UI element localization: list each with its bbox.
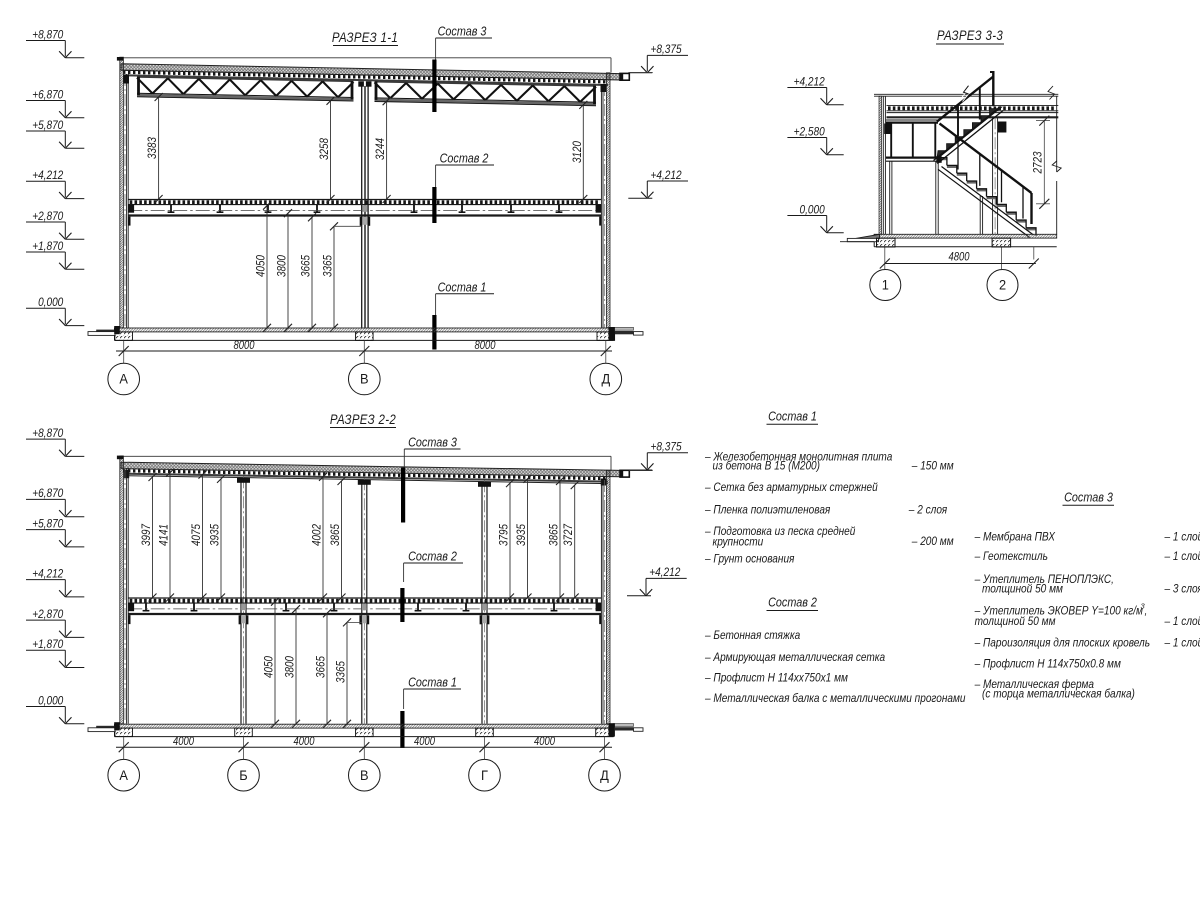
- svg-text:– 2 слоя: – 2 слоя: [908, 504, 947, 517]
- svg-text:4000: 4000: [414, 735, 435, 748]
- svg-text:3244: 3244: [374, 138, 387, 160]
- svg-text:2: 2: [999, 277, 1006, 292]
- svg-text:8000: 8000: [234, 339, 255, 352]
- svg-text:4050: 4050: [263, 655, 276, 678]
- svg-text:+1,870: +1,870: [32, 638, 64, 651]
- svg-text:+4,212: +4,212: [649, 566, 681, 579]
- svg-text:+8,870: +8,870: [32, 427, 64, 440]
- svg-text:– 3 слоя: – 3 слоя: [1164, 583, 1200, 596]
- svg-text:+8,375: +8,375: [651, 43, 683, 56]
- svg-text:В: В: [360, 767, 369, 782]
- svg-text:+5,870: +5,870: [32, 518, 64, 531]
- svg-text:1: 1: [882, 277, 889, 292]
- svg-text:толщиной 50 мм: толщиной 50 мм: [982, 583, 1063, 596]
- svg-text:– Профлист Н 114хх750х1 мм: – Профлист Н 114хх750х1 мм: [704, 671, 848, 684]
- svg-text:– Пленка полиэтиленовая: – Пленка полиэтиленовая: [704, 504, 830, 517]
- svg-text:Состав 2: Состав 2: [408, 548, 457, 563]
- svg-text:3365: 3365: [322, 254, 335, 277]
- svg-text:4002: 4002: [311, 524, 324, 546]
- svg-text:3727: 3727: [562, 523, 575, 546]
- svg-text:– Армирующая металлическая сет: – Армирующая металлическая сетка: [704, 651, 885, 664]
- svg-text:– 1 слой: – 1 слой: [1164, 615, 1200, 628]
- svg-text:8000: 8000: [475, 339, 496, 352]
- svg-text:Г: Г: [481, 767, 488, 782]
- svg-text:+2,580: +2,580: [794, 125, 826, 138]
- svg-text:3800: 3800: [284, 655, 297, 678]
- svg-text:Д: Д: [601, 371, 610, 386]
- svg-text:3665: 3665: [315, 655, 328, 678]
- svg-text:– Сетка без арматурных стержне: – Сетка без арматурных стержней: [704, 481, 878, 494]
- svg-text:Состав 2: Состав 2: [440, 150, 489, 165]
- svg-text:В: В: [360, 371, 369, 386]
- svg-text:4000: 4000: [173, 735, 194, 748]
- svg-text:РАЗРЕЗ 1-1: РАЗРЕЗ 1-1: [332, 29, 398, 45]
- svg-text:РАЗРЕЗ 2-2: РАЗРЕЗ 2-2: [330, 411, 396, 427]
- svg-text:Состав 3: Состав 3: [408, 434, 457, 449]
- svg-text:– 1 слой: – 1 слой: [1164, 531, 1200, 544]
- svg-text:+6,870: +6,870: [32, 88, 64, 101]
- svg-text:+2,870: +2,870: [32, 608, 64, 621]
- svg-text:– 200 мм: – 200 мм: [911, 535, 954, 548]
- svg-text:– 150 мм: – 150 мм: [911, 460, 954, 473]
- svg-text:+2,870: +2,870: [32, 210, 64, 223]
- svg-text:Состав 3: Состав 3: [1064, 489, 1113, 504]
- svg-text:4050: 4050: [255, 254, 268, 277]
- svg-text:– Геотекстиль: – Геотекстиль: [974, 550, 1048, 563]
- svg-text:+6,870: +6,870: [32, 487, 64, 500]
- svg-text:Состав 1: Состав 1: [768, 408, 817, 423]
- svg-text:Б: Б: [239, 767, 247, 782]
- svg-text:А: А: [119, 767, 128, 782]
- svg-text:Состав 1: Состав 1: [438, 279, 487, 294]
- svg-text:,: ,: [1145, 605, 1148, 618]
- svg-text:– Грунт основания: – Грунт основания: [704, 553, 794, 566]
- svg-text:3258: 3258: [318, 137, 331, 160]
- svg-text:3935: 3935: [515, 523, 528, 546]
- svg-text:3365: 3365: [335, 660, 348, 683]
- svg-text:А: А: [119, 371, 128, 386]
- svg-text:3997: 3997: [140, 523, 153, 546]
- svg-text:РАЗРЕЗ 3-3: РАЗРЕЗ 3-3: [937, 27, 1003, 43]
- svg-text:4141: 4141: [158, 524, 171, 546]
- svg-text:Состав 3: Состав 3: [438, 23, 487, 38]
- svg-text:из бетона В 15 (М200): из бетона В 15 (М200): [713, 460, 821, 473]
- svg-text:Состав 1: Состав 1: [408, 674, 457, 689]
- svg-text:– Металлическая балка с металл: – Металлическая балка с металлическими п…: [704, 692, 966, 705]
- svg-text:+8,375: +8,375: [651, 441, 683, 454]
- svg-text:– Мембрана ПВХ: – Мембрана ПВХ: [974, 531, 1056, 544]
- svg-text:0,000: 0,000: [38, 694, 64, 707]
- svg-text:2723: 2723: [1032, 152, 1045, 175]
- svg-text:3865: 3865: [548, 523, 561, 546]
- svg-text:4800: 4800: [949, 250, 970, 263]
- svg-text:+4,212: +4,212: [794, 75, 826, 88]
- svg-text:+1,870: +1,870: [32, 240, 64, 253]
- svg-text:+8,870: +8,870: [32, 28, 64, 41]
- svg-text:+5,870: +5,870: [32, 119, 64, 132]
- svg-text:– Бетонная стяжка: – Бетонная стяжка: [704, 629, 800, 642]
- svg-text:(с торца металлическая балка): (с торца металлическая балка): [982, 688, 1135, 701]
- svg-text:– 1 слой: – 1 слой: [1164, 550, 1200, 563]
- svg-text:4075: 4075: [190, 523, 203, 546]
- svg-text:3120: 3120: [571, 140, 584, 163]
- svg-text:– Пароизоляция для плоских кро: – Пароизоляция для плоских кровель: [974, 637, 1150, 650]
- svg-text:Д: Д: [600, 767, 609, 782]
- svg-text:3865: 3865: [329, 523, 342, 546]
- svg-text:0,000: 0,000: [38, 296, 64, 309]
- svg-text:3935: 3935: [209, 523, 222, 546]
- svg-text:3800: 3800: [276, 254, 289, 277]
- svg-text:толщиной 50 мм: толщиной 50 мм: [975, 615, 1056, 628]
- svg-text:4000: 4000: [534, 735, 555, 748]
- svg-text:3383: 3383: [146, 137, 159, 159]
- svg-text:+4,212: +4,212: [651, 169, 683, 182]
- svg-text:– Профлист Н 114х750х0.8 мм: – Профлист Н 114х750х0.8 мм: [974, 658, 1121, 671]
- svg-text:+4,212: +4,212: [32, 169, 64, 182]
- svg-text:+4,212: +4,212: [32, 568, 64, 581]
- svg-text:– 1 слой: – 1 слой: [1164, 637, 1200, 650]
- svg-text:крупности: крупности: [713, 535, 764, 548]
- svg-text:3665: 3665: [300, 254, 313, 277]
- svg-text:3795: 3795: [498, 523, 511, 546]
- svg-text:0,000: 0,000: [799, 203, 825, 216]
- svg-text:Состав 2: Состав 2: [768, 595, 817, 610]
- svg-text:4000: 4000: [294, 735, 315, 748]
